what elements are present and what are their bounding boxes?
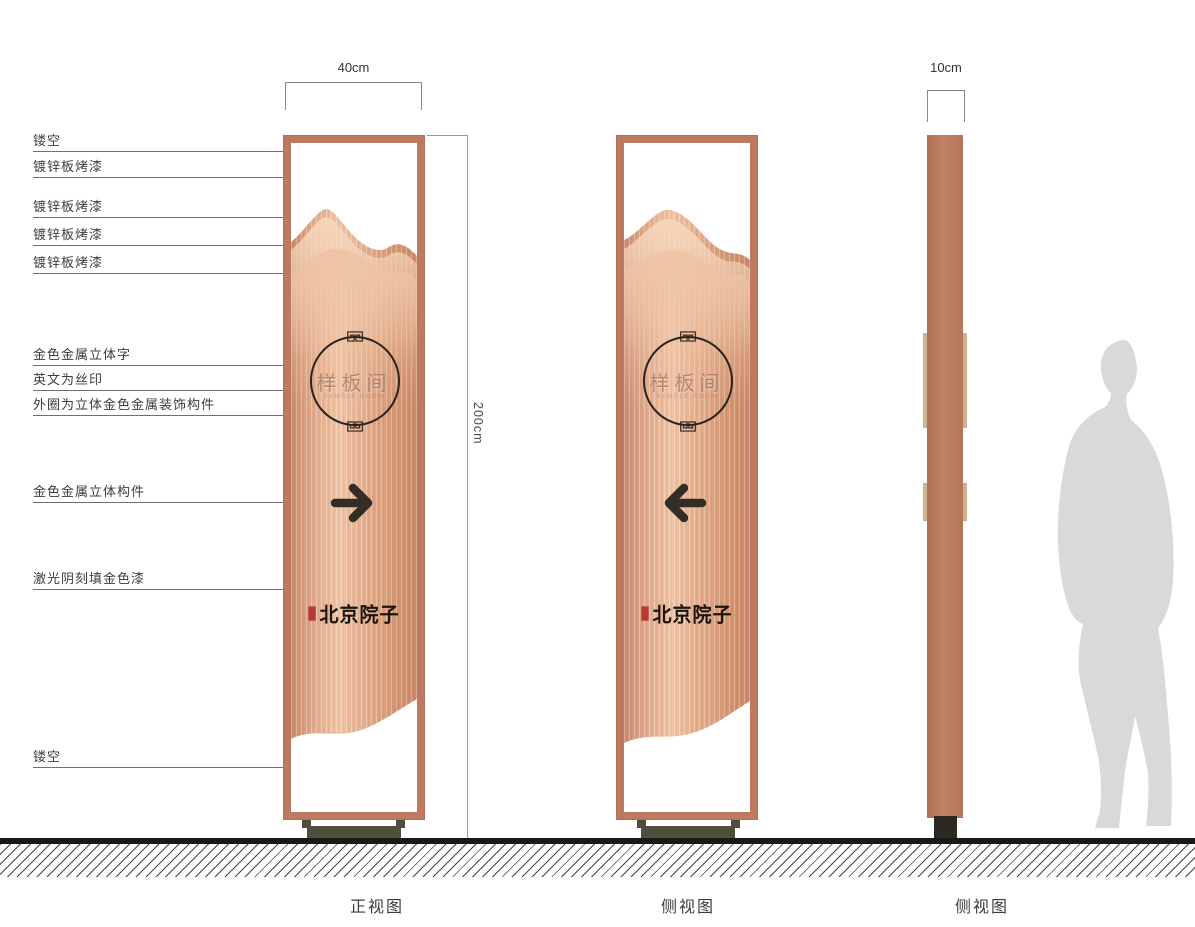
mountain-graphic <box>624 143 750 812</box>
annotation-galvanized-3: 镀锌板烤漆 <box>33 226 293 246</box>
side-view-panel: 样板间 SAMPLE ROOM 北京院子 <box>616 135 758 820</box>
caption-front-view: 正视图 <box>322 893 432 917</box>
meander-ornament-icon <box>678 420 698 433</box>
annotation-label: 镂空 <box>33 130 61 149</box>
meander-ornament-icon <box>345 420 365 433</box>
annotation-label: 金色金属立体构件 <box>33 481 145 500</box>
annotation-label: 英文为丝印 <box>33 369 103 388</box>
arrow-left-icon <box>324 483 380 523</box>
room-subtext: SAMPLE ROOM <box>637 394 737 400</box>
mountain-graphic <box>291 143 417 812</box>
red-seal-icon <box>641 606 649 621</box>
dimension-height: 200cm <box>471 402 485 445</box>
dimension-line-height <box>467 135 468 838</box>
dimension-tick-height <box>427 135 467 136</box>
annotation-label: 镀锌板烤漆 <box>33 252 103 271</box>
annotation-label: 激光阴刻填金色漆 <box>33 568 145 587</box>
ground-hatch-pattern <box>0 844 1195 877</box>
annotation-outer-ring: 外圈为立体金色金属装饰构件 <box>33 396 314 416</box>
room-name-text: 样板间 <box>304 367 404 396</box>
dimension-side-width: 10cm <box>923 60 969 75</box>
room-name-text: 样板间 <box>637 367 737 396</box>
annotation-label: 外圈为立体金色金属装饰构件 <box>33 394 215 413</box>
side-foot-base <box>641 826 735 838</box>
meander-ornament-icon <box>678 330 698 343</box>
front-foot-base <box>307 826 401 838</box>
signage-design-drawing: 镂空 镀锌板烤漆 镀锌板烤漆 镀锌板烤漆 镀锌板烤漆 金色金属立体字 英文为丝印… <box>0 0 1195 927</box>
arrow-right-icon <box>657 483 713 523</box>
annotation-label: 金色金属立体字 <box>33 344 131 363</box>
side-panel-face: 样板间 SAMPLE ROOM 北京院子 <box>624 143 750 812</box>
dimension-front-width: 40cm <box>285 60 422 75</box>
brand-logo: 北京院子 <box>291 600 417 627</box>
side-profile-panel <box>927 135 963 818</box>
caption-side-view-2: 侧视图 <box>927 893 1037 917</box>
brand-name-text: 北京院子 <box>319 599 399 627</box>
annotation-galvanized-2: 镀锌板烤漆 <box>33 198 312 218</box>
caption-side-view: 侧视图 <box>633 893 743 917</box>
dimension-bracket-side <box>927 90 965 122</box>
dimension-bracket-front <box>285 82 422 110</box>
brand-name-text: 北京院子 <box>652 599 732 627</box>
meander-ornament-icon <box>345 330 365 343</box>
room-subtext: SAMPLE ROOM <box>304 394 404 400</box>
annotation-label: 镀锌板烤漆 <box>33 196 103 215</box>
annotation-hollow-bottom: 镂空 <box>33 748 302 768</box>
front-panel-face: 样板间 SAMPLE ROOM 北京院子 <box>291 143 417 812</box>
side-profile-foot <box>934 816 957 838</box>
annotation-label: 镂空 <box>33 746 61 765</box>
brand-logo: 北京院子 <box>624 600 750 627</box>
human-scale-silhouette <box>1035 336 1190 836</box>
annotation-galvanized-4: 镀锌板烤漆 <box>33 254 289 274</box>
front-view-panel: 样板间 SAMPLE ROOM 北京院子 <box>283 135 425 820</box>
red-seal-icon <box>308 606 316 621</box>
annotation-hollow-top: 镂空 <box>33 132 307 152</box>
annotation-galvanized-1: 镀锌板烤漆 <box>33 158 286 178</box>
annotation-label: 镀锌板烤漆 <box>33 224 103 243</box>
annotation-label: 镀锌板烤漆 <box>33 156 103 175</box>
